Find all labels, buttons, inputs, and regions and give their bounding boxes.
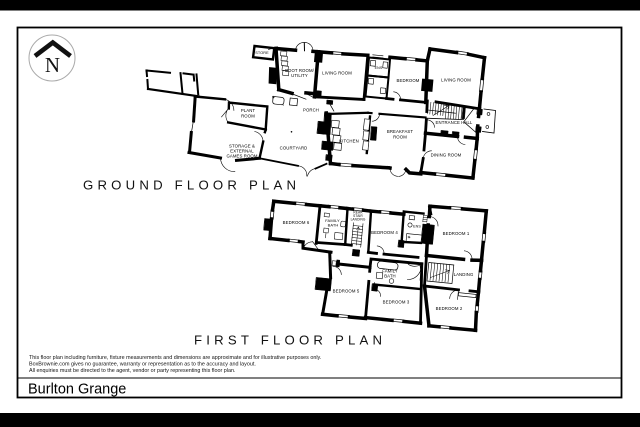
svg-text:All enquiries must be directed: All enquiries must be directed to the ag… xyxy=(29,368,235,374)
svg-text:GROUND FLOOR PLAN: GROUND FLOOR PLAN xyxy=(83,178,300,193)
svg-text:LIVING ROOM: LIVING ROOM xyxy=(441,78,471,83)
svg-text:DINING ROOM: DINING ROOM xyxy=(431,153,462,158)
svg-text:BEDROOM 6: BEDROOM 6 xyxy=(283,220,310,225)
svg-text:PORCH: PORCH xyxy=(303,108,319,113)
svg-text:BATH: BATH xyxy=(328,223,339,228)
svg-text:UTILITY: UTILITY xyxy=(291,73,308,78)
svg-text:BEDROOM 4: BEDROOM 4 xyxy=(371,230,398,235)
svg-text:ROOM: ROOM xyxy=(393,135,407,140)
svg-text:BEDROOM 2: BEDROOM 2 xyxy=(436,306,463,311)
svg-text:ENS: ENS xyxy=(413,225,421,229)
svg-text:BEDROOM 3: BEDROOM 3 xyxy=(383,300,410,305)
svg-text:BEDROOM 1: BEDROOM 1 xyxy=(443,231,470,236)
svg-text:FIRST FLOOR PLAN: FIRST FLOOR PLAN xyxy=(194,333,386,348)
svg-text:LANDING: LANDING xyxy=(454,272,474,277)
svg-text:LIVING ROOM: LIVING ROOM xyxy=(322,71,352,76)
svg-text:KITCHEN: KITCHEN xyxy=(339,139,359,144)
svg-text:BREAKFAST: BREAKFAST xyxy=(387,129,413,134)
svg-text:Burlton Grange: Burlton Grange xyxy=(28,382,126,398)
svg-text:ENS: ENS xyxy=(375,66,383,70)
svg-text:PLANT: PLANT xyxy=(241,108,256,113)
svg-text:BATH: BATH xyxy=(384,274,396,279)
svg-text:This floor plan including furn: This floor plan including furniture, fix… xyxy=(29,355,321,361)
svg-text:BEDROOM: BEDROOM xyxy=(397,78,420,83)
svg-text:BoxBrownie.com gives no guaran: BoxBrownie.com gives no guarantee, warra… xyxy=(29,362,256,368)
svg-text:N: N xyxy=(45,53,60,77)
svg-text:COURTYARD: COURTYARD xyxy=(280,146,308,151)
svg-text:BEDROOM 5: BEDROOM 5 xyxy=(333,289,360,294)
svg-text:ENTRANCE HALL: ENTRANCE HALL xyxy=(436,120,473,125)
svg-text:LANDING: LANDING xyxy=(351,218,366,222)
svg-text:STORE: STORE xyxy=(255,51,269,55)
svg-text:GAMES ROOM: GAMES ROOM xyxy=(226,154,257,159)
svg-text:ROOM: ROOM xyxy=(241,114,255,119)
